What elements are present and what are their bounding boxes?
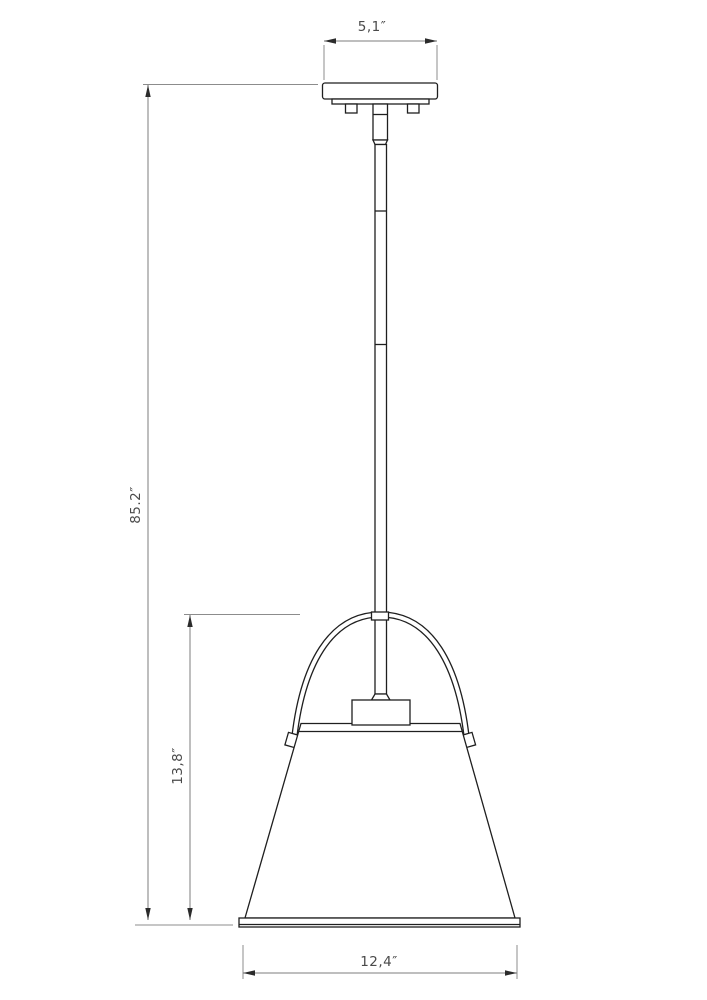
mounting-screw-right (408, 104, 420, 113)
shade-bottom-trim (239, 918, 520, 927)
dimension-drawing: 5,1″ 85.2″ 13,8″ 12,4″ (0, 0, 707, 1000)
shade (245, 724, 515, 919)
rod-flare (372, 694, 391, 700)
ceiling-canopy (323, 83, 438, 104)
socket-housing (352, 700, 410, 725)
mounting-screw-left (346, 104, 358, 113)
hang-straight-stem (373, 104, 388, 145)
dimension-label-canopy-width: 5,1″ (358, 19, 387, 35)
drawing-canvas (0, 0, 707, 1000)
rod-collar (372, 612, 389, 620)
dimension-label-shade-height: 13,8″ (170, 747, 186, 785)
dimension-label-overall-height: 85.2″ (128, 486, 144, 524)
dimension-label-shade-width: 12,4″ (360, 954, 398, 970)
